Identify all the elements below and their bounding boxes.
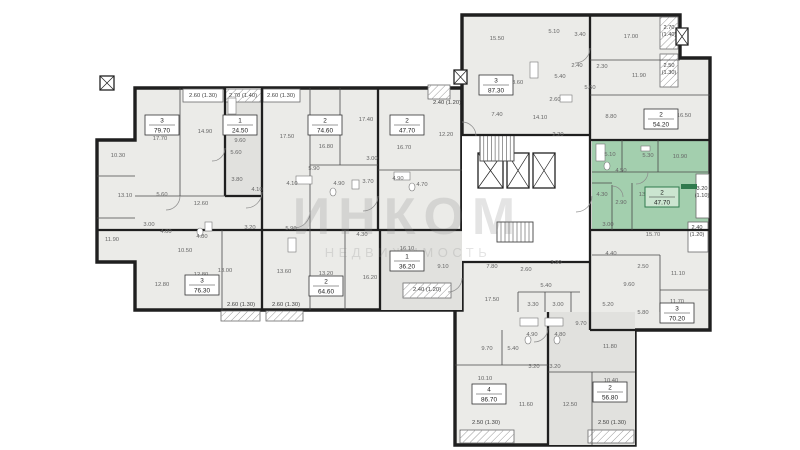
unit-rooms-count: 2 [608, 385, 612, 392]
selected-unit-label-47.70[interactable]: 247.70 [645, 187, 679, 207]
room-area-label: 17.00 [624, 34, 639, 40]
balcony-hatch [266, 311, 303, 321]
room-area-label: 3.70 [362, 179, 373, 185]
room-area-label: 3.90 [550, 260, 561, 266]
room-area-label: 16.20 [363, 275, 378, 281]
unit-label-56.80[interactable]: 256.80 [593, 382, 627, 402]
room-area-label: 9.70 [575, 321, 586, 327]
unit-rooms-count: 3 [494, 78, 498, 85]
room-area-label: 12.80 [155, 282, 170, 288]
room-area-label: 4.90 [526, 332, 537, 338]
room-area-label: 2.40 [571, 63, 582, 69]
room-area-label: 5.40 [507, 346, 518, 352]
unit-label-86.70[interactable]: 486.70 [472, 384, 506, 404]
unit-area-value: 79.70 [154, 128, 170, 135]
room-area-label: 2.60 [520, 267, 531, 273]
dimension-label: 2.60 (1.30) [272, 302, 300, 308]
room-area-label: 3.00 [552, 302, 563, 308]
room-area-label: 3.00 [366, 156, 377, 162]
room-area-label: 13.00 [218, 268, 233, 274]
room-area-label: 13.10 [118, 193, 133, 199]
dimension-label: 2.70 [664, 25, 675, 31]
bathroom-fixture [520, 318, 538, 326]
unit-label-24.50[interactable]: 124.50 [223, 115, 257, 135]
bathroom-fixture [228, 98, 236, 114]
room-area-label: 16.80 [319, 144, 334, 150]
bathroom-fixture [530, 62, 538, 78]
unit-rooms-count: 1 [238, 118, 242, 125]
stairs [480, 135, 514, 161]
room-area-label: 2.50 [637, 264, 648, 270]
room-area-label: 4.80 [196, 234, 207, 240]
room-area-label: 9.60 [623, 282, 634, 288]
room-area-label: 4.50 [615, 168, 626, 174]
room-area-label: 11.80 [603, 344, 617, 350]
room-area-label: 13.60 [277, 269, 292, 275]
selected-balcony-door [681, 184, 697, 189]
unit-area-value: 47.70 [399, 128, 415, 135]
room-area-label: 7.80 [486, 264, 497, 270]
bathroom-fixture [205, 222, 212, 231]
room-area-label: 14.90 [198, 129, 213, 135]
unit-rooms-count: 3 [200, 278, 204, 285]
unit-rooms-count: 1 [405, 254, 409, 261]
bathroom-fixture [560, 95, 572, 102]
unit-area-value: 24.50 [232, 128, 248, 135]
unit-rooms-count: 2 [660, 190, 664, 197]
room-area-label: 14.10 [533, 115, 548, 121]
dimension-label: 2.60 (1.30) [227, 302, 255, 308]
unit-label-79.70[interactable]: 379.70 [145, 115, 179, 135]
room-area-label: 2.30 [596, 64, 607, 70]
room-area-label: 4.90 [333, 181, 344, 187]
room-area-label: 17.50 [485, 297, 500, 303]
room-area-label: 5.10 [548, 29, 559, 35]
room-area-label: 4.00 [160, 229, 171, 235]
unit-area-value: 47.70 [654, 200, 670, 207]
unit-area-value: 36.20 [399, 264, 415, 271]
unit-rooms-count: 2 [405, 118, 409, 125]
room-area-label: 12.20 [439, 132, 454, 138]
dimension-label: 2.60 (1.30) [267, 93, 295, 99]
room-area-label: 10.30 [111, 153, 126, 159]
unit-rooms-count: 2 [659, 112, 663, 119]
room-area-label: 4.30 [356, 232, 367, 238]
room-area-label: 4.80 [554, 332, 565, 338]
unit-area-value: 54.20 [653, 122, 669, 129]
balcony-hatch [588, 430, 634, 443]
room-area-label: 11.90 [105, 237, 119, 243]
unit-label-54.20[interactable]: 254.20 [644, 109, 678, 129]
balcony-hatch [428, 85, 450, 99]
room-area-label: 12.50 [563, 402, 578, 408]
unit-label-36.20[interactable]: 136.20 [390, 251, 424, 271]
room-area-label: 4.40 [605, 251, 616, 257]
room-area-label: 5.80 [637, 310, 648, 316]
room-area-label: 12.60 [194, 201, 209, 207]
unit-rooms-count: 3 [160, 118, 164, 125]
dimension-label: 2.60 (1.30) [189, 93, 217, 99]
room-area-label: 5.60 [584, 85, 595, 91]
room-area-label: 3.00 [602, 222, 613, 228]
room-area-label: 5.30 [642, 153, 653, 159]
room-area-label: 3.30 [527, 302, 538, 308]
toilet-fixture [604, 162, 610, 170]
unit-label-87.30[interactable]: 387.30 [479, 75, 513, 95]
room-area-label: 17.40 [359, 117, 374, 123]
room-area-label: 3.20 [549, 364, 560, 370]
room-area-label: 5.60 [230, 150, 241, 156]
unit-area-value: 70.20 [669, 316, 685, 323]
dimension-label: 2.50 [664, 63, 675, 69]
dimension-label: 3.20 [697, 186, 708, 192]
room-area-label: 7.40 [491, 112, 502, 118]
bathroom-fixture [296, 176, 312, 184]
room-area-label: 2.20 [552, 132, 563, 138]
dimension-label: (1.10) [695, 193, 710, 199]
unit-rooms-count: 4 [487, 387, 491, 394]
floor-plan-svg: ИНКОМНЕДВИЖИМОСТЬ10.3013.1011.9017.7014.… [0, 0, 800, 450]
room-area-label: 5.20 [602, 302, 613, 308]
unit-area-value: 64.60 [318, 289, 334, 296]
room-area-label: 16.50 [677, 113, 692, 119]
room-area-label: 9.70 [481, 346, 492, 352]
room-area-label: 3.20 [528, 364, 539, 370]
unit-rooms-count: 2 [324, 279, 328, 286]
unit-rooms-count: 3 [675, 306, 679, 313]
dimension-label: 2.50 (1.30) [472, 420, 500, 426]
room-area-label: 3.40 [574, 32, 585, 38]
room-area-label: 2.90 [615, 200, 626, 206]
room-area-label: 17.70 [153, 136, 168, 142]
room-area-label: 9.10 [437, 264, 448, 270]
room-area-label: 4.70 [416, 182, 427, 188]
unit-area-value: 74.60 [317, 128, 333, 135]
dimension-label: 2.70 (1.40) [229, 93, 257, 99]
dimension-label: (1.40) [662, 32, 677, 38]
unit-label-64.60[interactable]: 264.60 [309, 276, 343, 296]
room-area-label: 4.30 [596, 192, 607, 198]
dimension-label: 2.40 (1.20) [413, 287, 441, 293]
dimension-label: (1.30) [662, 70, 677, 76]
unit-area-value: 86.70 [481, 397, 497, 404]
room-area-label: 5.60 [156, 192, 167, 198]
unit-rooms-count: 2 [323, 118, 327, 125]
room-area-label: 5.40 [554, 74, 565, 80]
room-area-label: 10.10 [478, 376, 493, 382]
unit-label-70.20[interactable]: 370.20 [660, 303, 694, 323]
room-area-label: 11.90 [632, 73, 646, 79]
bathroom-fixture [545, 318, 563, 326]
room-area-label: 4.90 [392, 176, 403, 182]
room-area-label: 3.00 [143, 222, 154, 228]
watermark-logo: ИНКОМ [293, 188, 523, 246]
room-area-label: 4.10 [251, 187, 262, 193]
room-area-label: 8.80 [605, 114, 616, 120]
room-area-label: 5.90 [285, 226, 296, 232]
room-area-label: 9.60 [234, 138, 245, 144]
dimension-label: 2.50 (1.30) [598, 420, 626, 426]
unit-label-74.60[interactable]: 274.60 [308, 115, 342, 135]
dimension-label: (1.20) [690, 232, 705, 238]
room-area-label: 2.60 [549, 97, 560, 103]
room-area-label: 11.60 [519, 402, 533, 408]
unit-area-value: 56.80 [602, 395, 618, 402]
room-area-label: 10.90 [673, 154, 688, 160]
balcony-hatch [221, 311, 260, 321]
balcony-hatch [460, 430, 514, 443]
room-area-label: 3.80 [231, 177, 242, 183]
room-area-label: 3.20 [244, 225, 255, 231]
room-area-label: 4.10 [286, 181, 297, 187]
dimension-label: 2.40 [692, 225, 703, 231]
room-area-label: 15.50 [490, 36, 505, 42]
unit-area-value: 87.30 [488, 88, 504, 95]
room-area-label: 15.70 [646, 232, 661, 238]
unit-area-value: 76.30 [194, 288, 210, 295]
room-area-label: 11.10 [671, 271, 685, 277]
unit-label-76.30[interactable]: 376.30 [185, 275, 219, 295]
room-area-label: 5.10 [604, 152, 615, 158]
room-area-label: 5.90 [308, 166, 319, 172]
floor-plan-viewer: ИНКОМНЕДВИЖИМОСТЬ10.3013.1011.9017.7014.… [0, 0, 800, 450]
dimension-label: 2.40 (1.20) [433, 100, 461, 106]
unit-label-47.70[interactable]: 247.70 [390, 115, 424, 135]
room-area-label: 17.50 [280, 134, 295, 140]
bathroom-fixture [641, 146, 650, 151]
room-area-label: 5.40 [540, 283, 551, 289]
room-area-label: 16.70 [397, 145, 412, 151]
room-area-label: 10.50 [178, 248, 193, 254]
